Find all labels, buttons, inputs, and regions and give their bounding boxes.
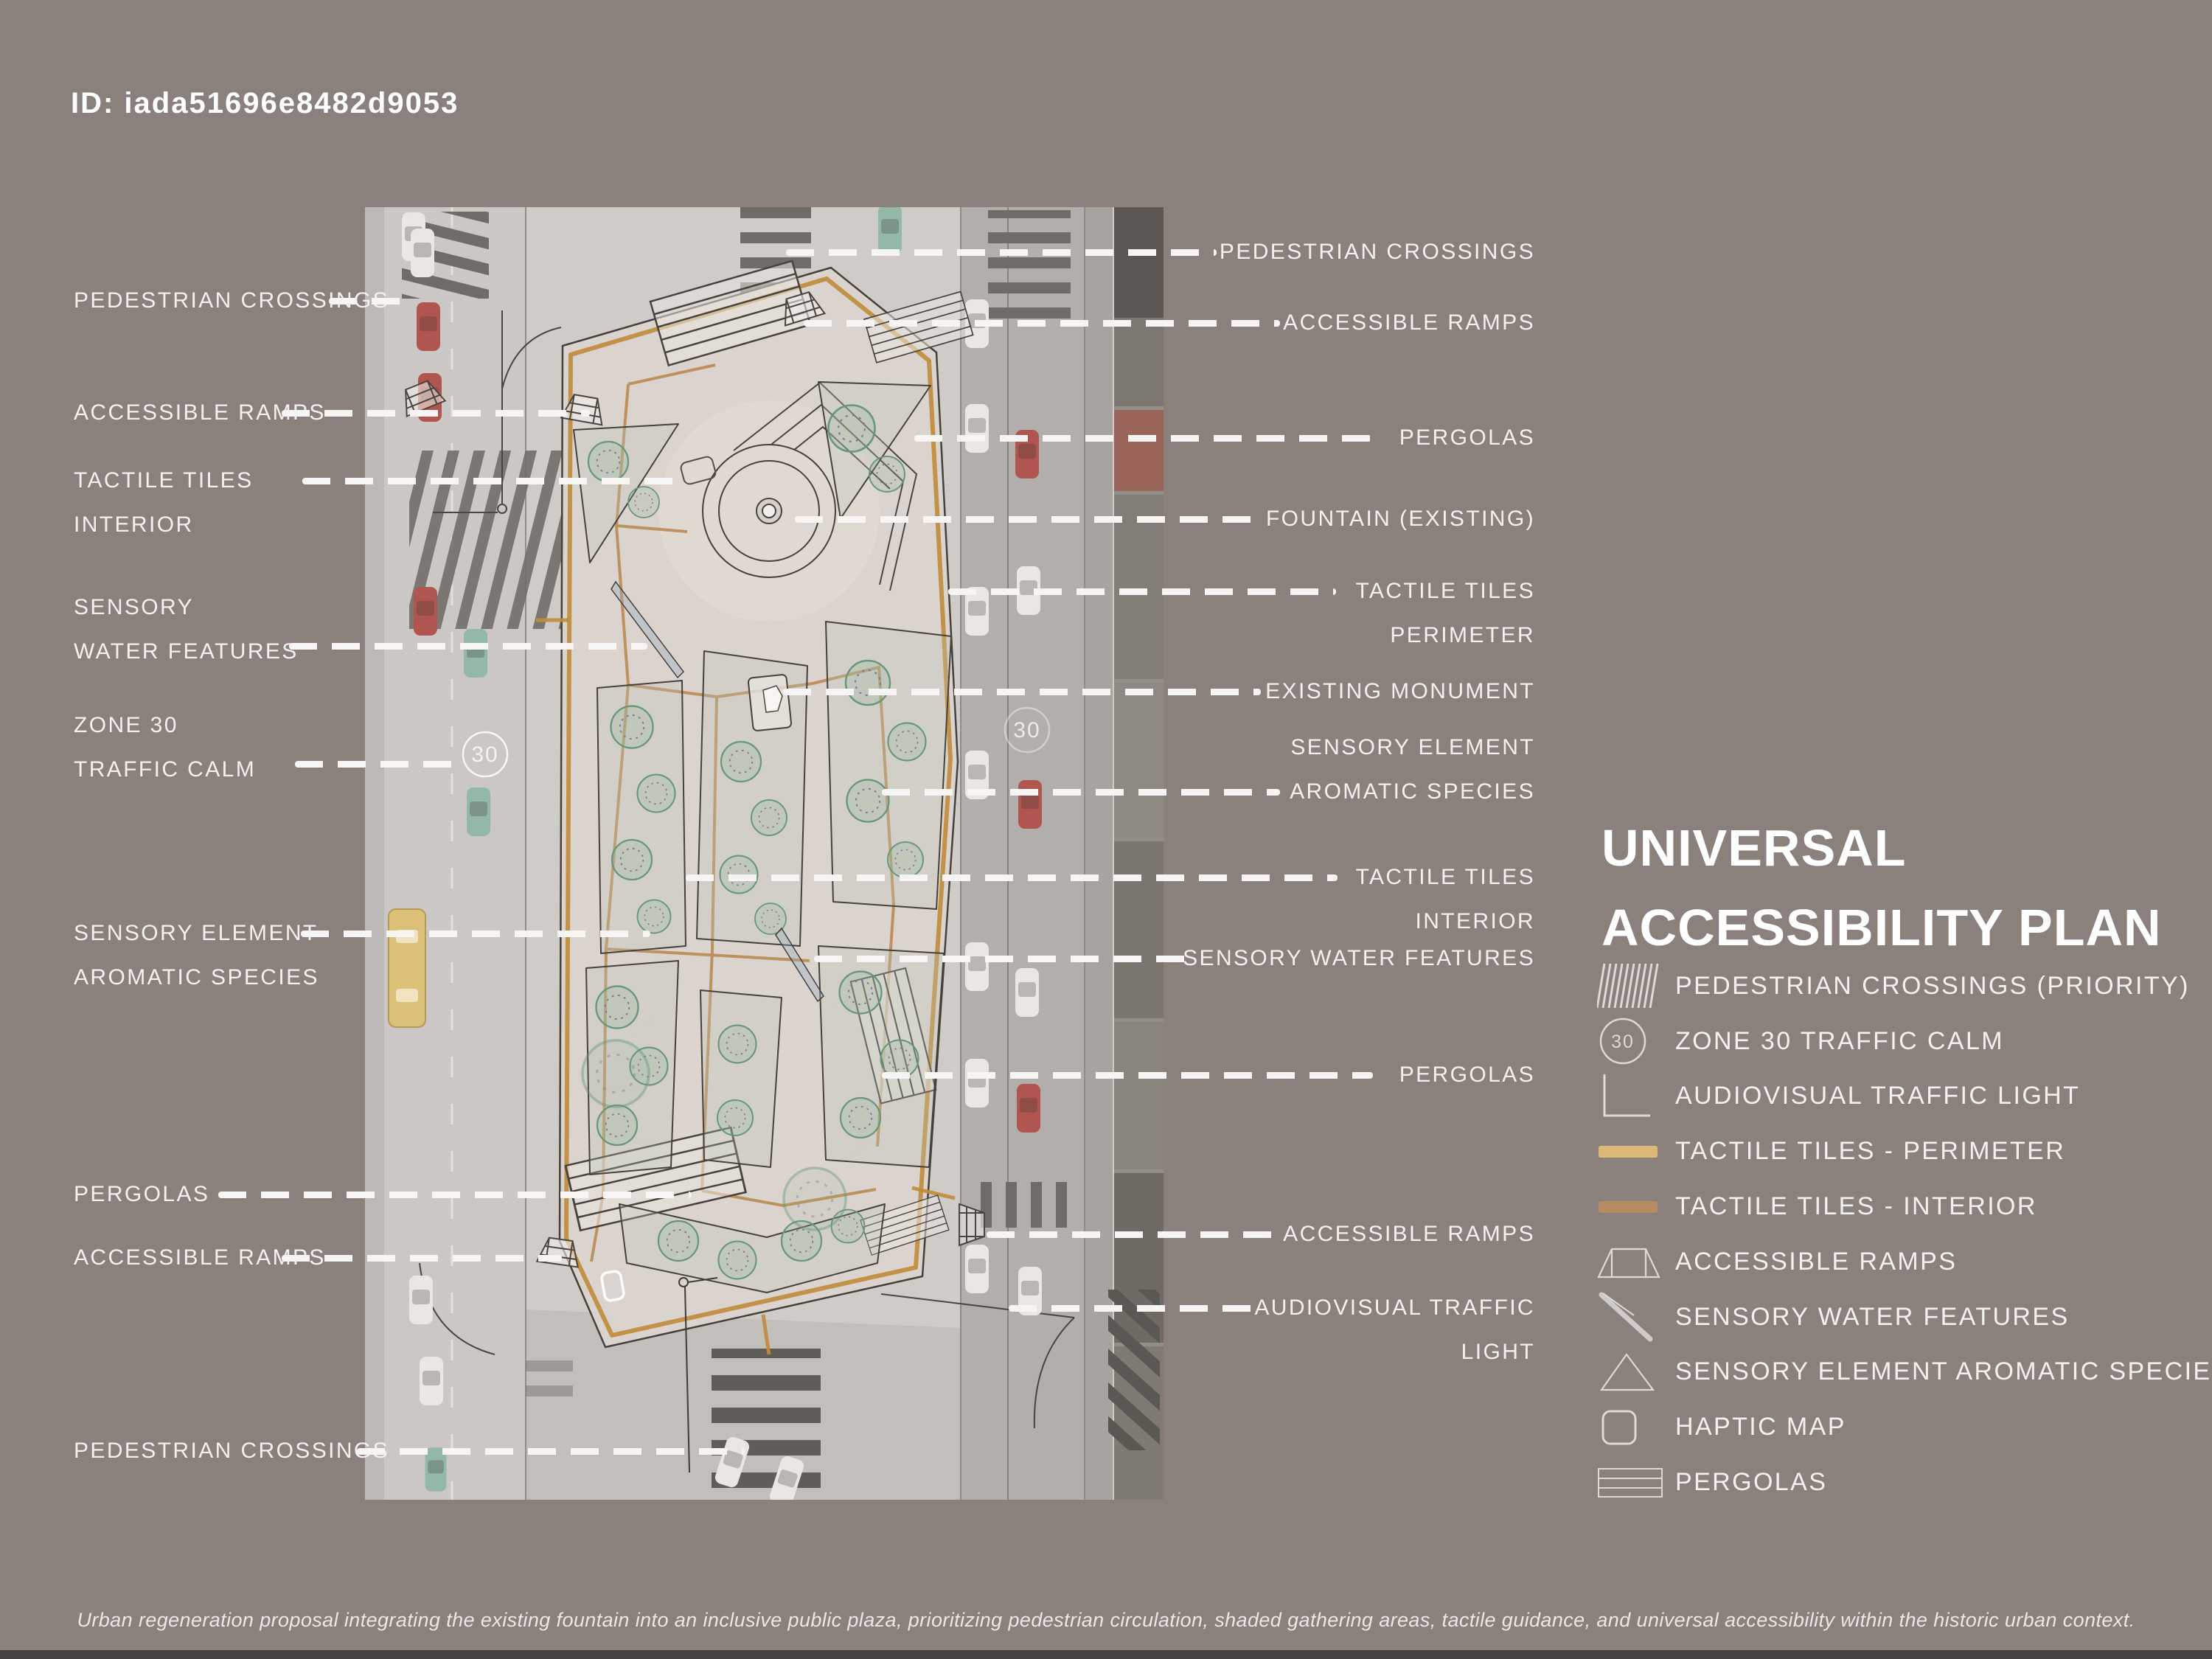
left-sidewalk <box>365 207 384 1500</box>
callout-label: PERGOLAS <box>74 1172 209 1217</box>
callout-label: EXISTING MONUMENT <box>1265 669 1535 714</box>
legend-item-pergolas: PERGOLAS <box>1597 1455 2202 1510</box>
rounded-square-icon <box>1597 1405 1675 1450</box>
legend-item-zone-30-traffic-calm: 30ZONE 30 TRAFFIC CALM <box>1597 1014 2202 1069</box>
svg-text:30: 30 <box>1013 718 1040 742</box>
page-title: UNIVERSAL ACCESSIBILITY PLAN <box>1601 808 2162 967</box>
legend: PEDESTRIAN CROSSINGS (PRIORITY)30ZONE 30… <box>1597 959 2202 1510</box>
leader-dash-line <box>301 931 650 937</box>
callout-label: PERGOLAS <box>1399 1053 1535 1097</box>
page-title-line1: UNIVERSAL <box>1601 808 2162 888</box>
legend-label: ZONE 30 TRAFFIC CALM <box>1675 1027 2004 1056</box>
triangle-icon <box>1597 1350 1675 1394</box>
legend-item-pedestrian-crossings-priority: PEDESTRIAN CROSSINGS (PRIORITY) <box>1597 959 2202 1014</box>
fountain <box>703 445 835 577</box>
callout-label: TACTILE TILESPERIMETER <box>1356 569 1536 658</box>
tactile-interior-swatch <box>1597 1196 1675 1218</box>
leader-dash-line <box>948 588 1336 595</box>
legend-item-tactile-tiles-perimeter: TACTILE TILES - PERIMETER <box>1597 1124 2202 1179</box>
bottom-border-bar <box>0 1650 2212 1659</box>
leader-dash-line <box>804 320 1280 327</box>
leader-dash-line <box>329 298 407 305</box>
page-title-line2: ACCESSIBILITY PLAN <box>1601 888 2162 967</box>
legend-item-haptic-map: HAPTIC MAP <box>1597 1399 2202 1455</box>
legend-item-tactile-tiles-interior: TACTILE TILES - INTERIOR <box>1597 1179 2202 1234</box>
leader-dash-line <box>795 516 1259 523</box>
leader-dash-line <box>357 1448 745 1455</box>
legend-item-audiovisual-traffic-light: AUDIOVISUAL TRAFFIC LIGHT <box>1597 1069 2202 1124</box>
crosswalk-hatch-icon <box>1597 962 1675 1009</box>
leader-dash-line <box>783 689 1261 695</box>
legend-label: SENSORY ELEMENT AROMATIC SPECIES <box>1675 1357 2212 1386</box>
page-root: ID: iada51696e8482d9053 <box>0 0 2212 1659</box>
legend-label: HAPTIC MAP <box>1675 1413 1846 1441</box>
pergola-striped-icon <box>1597 1464 1675 1501</box>
leader-dash-line <box>218 1192 692 1198</box>
leader-dash-line <box>686 874 1338 881</box>
crosswalk-bottom-left <box>526 1357 573 1409</box>
plan-id-label: ID: iada51696e8482d9053 <box>71 87 459 120</box>
leader-dash-line <box>786 249 1217 256</box>
legend-label: TACTILE TILES - PERIMETER <box>1675 1137 2065 1166</box>
water-diagonal-icon <box>1597 1290 1675 1343</box>
left-road <box>384 207 526 1500</box>
legend-label: PERGOLAS <box>1675 1468 1827 1497</box>
legend-item-sensory-water-features: SENSORY WATER FEATURES <box>1597 1290 2202 1345</box>
tactile-perimeter-swatch <box>1597 1141 1675 1163</box>
ramp-trapezoid-icon <box>1597 1244 1675 1279</box>
legend-label: PEDESTRIAN CROSSINGS (PRIORITY) <box>1675 972 2190 1001</box>
callout-label: SENSORY WATER FEATURES <box>1183 936 1535 981</box>
svg-text:30: 30 <box>471 742 498 767</box>
svg-text:30: 30 <box>1611 1032 1635 1052</box>
legend-item-accessible-ramps: ACCESSIBLE RAMPS <box>1597 1234 2202 1290</box>
callout-label: SENSORY ELEMENTAROMATIC SPECIES <box>1290 726 1535 814</box>
callout-label: PEDESTRIAN CROSSINGS <box>1220 230 1535 274</box>
monument <box>748 674 791 731</box>
callout-label: PERGOLAS <box>1399 416 1535 460</box>
bus <box>389 909 425 1027</box>
legend-item-sensory-element-aromatic-species: SENSORY ELEMENT AROMATIC SPECIES <box>1597 1345 2202 1400</box>
leader-dash-line <box>814 956 1190 962</box>
callout-label: ACCESSIBLE RAMPS <box>1283 1212 1535 1256</box>
callout-label: PEDESTRIAN CROSSINGS <box>74 1429 389 1473</box>
leader-dash-line <box>882 1072 1373 1079</box>
legend-label: SENSORY WATER FEATURES <box>1675 1303 2070 1332</box>
leader-dash-line <box>987 1231 1280 1238</box>
crosswalk-right <box>981 1182 1074 1228</box>
legend-label: ACCESSIBLE RAMPS <box>1675 1248 1957 1276</box>
leader-dash-line <box>289 643 647 650</box>
leader-dash-line <box>914 435 1371 442</box>
callout-label: AUDIOVISUAL TRAFFICLIGHT <box>1254 1286 1535 1374</box>
leader-dash-line <box>302 478 677 484</box>
callout-label: FOUNTAIN (EXISTING) <box>1266 497 1535 541</box>
legend-label: TACTILE TILES - INTERIOR <box>1675 1192 2037 1221</box>
callout-label: SENSORY ELEMENTAROMATIC SPECIES <box>74 911 319 1000</box>
zone30-circle-icon: 30 <box>1597 1015 1675 1067</box>
callout-label: SENSORYWATER FEATURES <box>74 585 299 674</box>
leader-dash-line <box>282 410 590 417</box>
crosswalk-top-right <box>988 210 1071 321</box>
traffic-light-corner-icon <box>1597 1073 1675 1120</box>
callout-label: TACTILE TILESINTERIOR <box>74 459 254 547</box>
leader-dash-line <box>295 761 459 768</box>
leader-dash-line <box>282 1255 562 1262</box>
callout-label: ACCESSIBLE RAMPS <box>1283 301 1535 345</box>
callout-label: TACTILE TILESINTERIOR <box>1356 855 1536 944</box>
crosswalk-bottom-right <box>1108 1290 1160 1450</box>
caption-text: Urban regeneration proposal integrating … <box>0 1609 2212 1632</box>
legend-label: AUDIOVISUAL TRAFFIC LIGHT <box>1675 1082 2080 1110</box>
leader-dash-line <box>882 789 1280 796</box>
leader-dash-line <box>1009 1305 1258 1312</box>
callout-label: ZONE 30TRAFFIC CALM <box>74 703 256 792</box>
